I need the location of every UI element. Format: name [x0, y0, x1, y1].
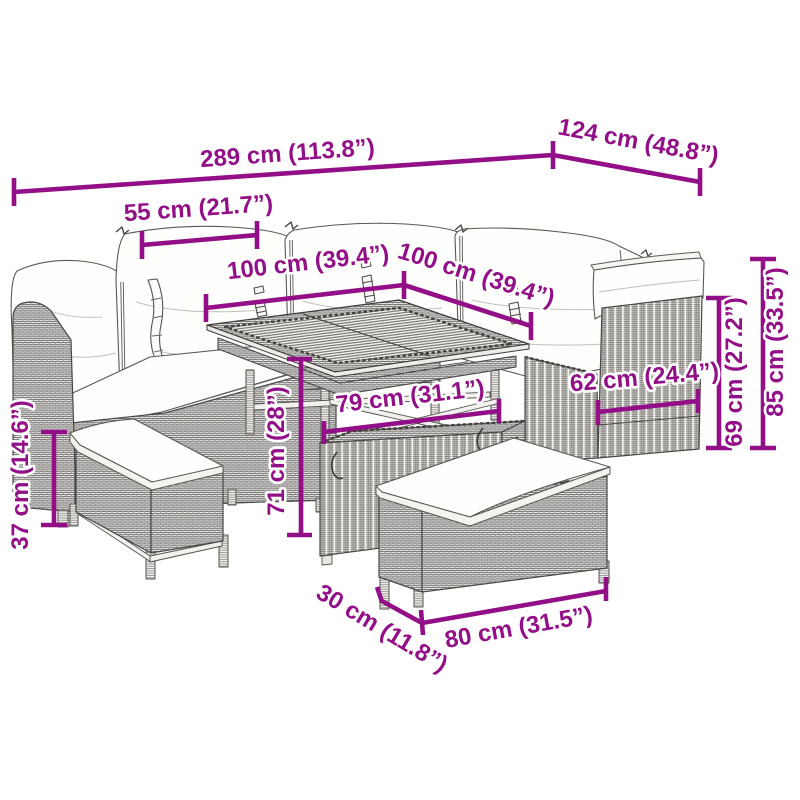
svg-text:71 cm (28”): 71 cm (28”): [263, 386, 290, 515]
svg-text:37 cm (14.6”): 37 cm (14.6”): [7, 400, 34, 549]
svg-text:85 cm (33.5”): 85 cm (33.5”): [762, 267, 789, 416]
svg-text:69 cm (27.2”): 69 cm (27.2”): [721, 297, 748, 446]
